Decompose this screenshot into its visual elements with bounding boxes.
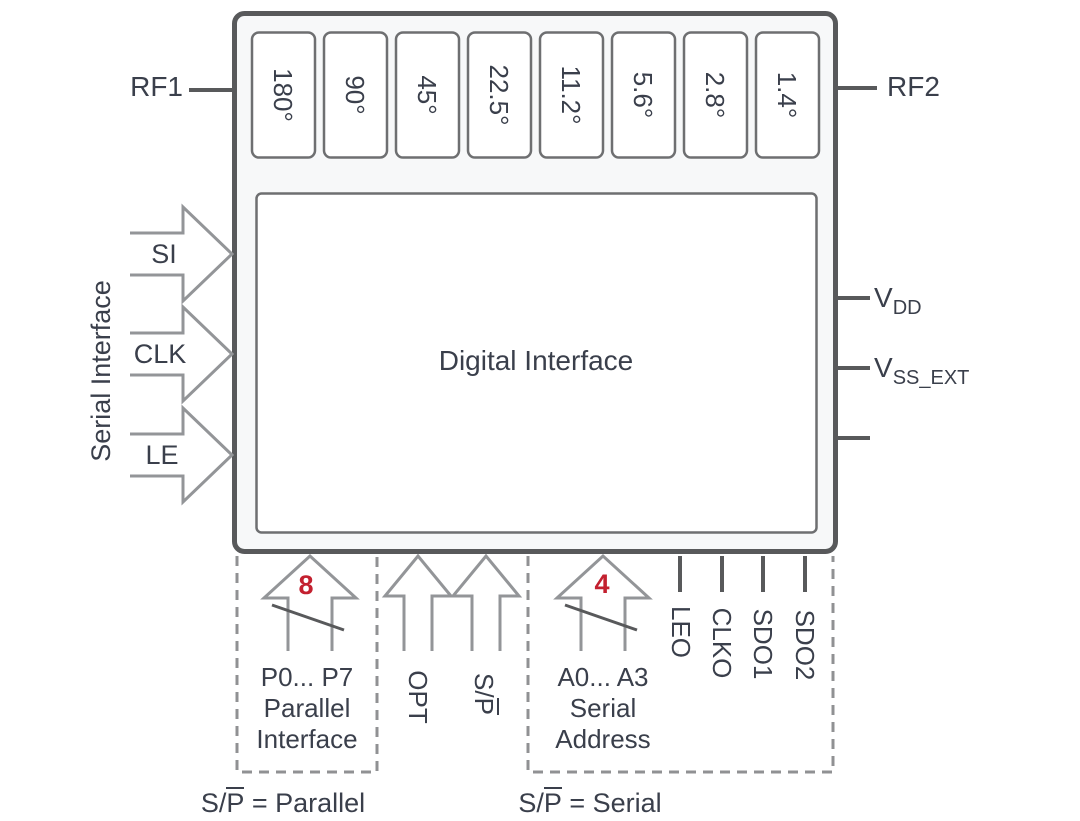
si-label: SI [124,240,204,270]
parallel-label-line2: Interface [215,724,399,755]
vdd-subscript: DD [893,297,922,319]
phase-label-1-4: 1.4° [772,55,802,135]
serial-caption-p-overline: P [544,787,562,817]
parallel-bus-width: 8 [290,571,322,601]
serial-interface-label: Serial Interface [87,221,117,521]
digital-interface-label: Digital Interface [386,346,686,377]
vdd-label: VDD [874,283,922,319]
rf2-label: RF2 [887,72,971,103]
parallel-label-line1: Parallel [215,693,399,724]
sdo1-label: SDO1 [749,584,777,704]
parallel-caption-s: S/ [201,788,227,818]
phase-label-5-6: 5.6° [628,55,658,135]
sdo2-label: SDO2 [791,585,819,705]
vss-subscript: SS_EXT [893,367,970,389]
parallel-caption: S/P = Parallel [173,787,393,819]
le-label: LE [122,441,202,471]
phase-label-180: 180° [268,55,298,135]
phase-label-90: 90° [340,55,370,135]
sp-label-p-overline: P [469,698,498,715]
parallel-caption-rest: = Parallel [244,788,365,818]
parallel-interface-block: P0... P7 Parallel Interface [215,662,399,755]
parallel-pins-label: P0... P7 [215,662,399,693]
leo-label: LEO [667,572,695,692]
phase-shifter-block-diagram: 180° 90° 45° 22.5° 11.2° 5.6° 2.8° 1.4° … [0,0,1080,821]
sp-label-s: S/ [469,673,500,698]
serial-caption-rest: = Serial [562,788,662,818]
opt-label: OPT [404,637,432,757]
serial-bus-width: 4 [586,570,618,600]
clko-label: CLKO [708,583,736,703]
serial-label-line1: Serial [511,693,695,724]
vss-ext-label: VSS_EXT [874,353,969,389]
serial-caption: S/P = Serial [480,787,700,819]
phase-label-11-2: 11.2° [556,55,586,135]
phase-label-22-5: 22.5° [484,55,514,135]
parallel-caption-p-overline: P [226,787,244,817]
clk-label: CLK [110,340,210,370]
rf1-label: RF1 [99,72,183,103]
phase-label-45: 45° [412,55,442,135]
sp-label: S/P [470,634,498,754]
phase-label-2-8: 2.8° [700,55,730,135]
serial-caption-s: S/ [518,788,544,818]
vdd-base: V [874,282,893,313]
serial-label-line2: Address [511,724,695,755]
vss-base: V [874,352,893,383]
